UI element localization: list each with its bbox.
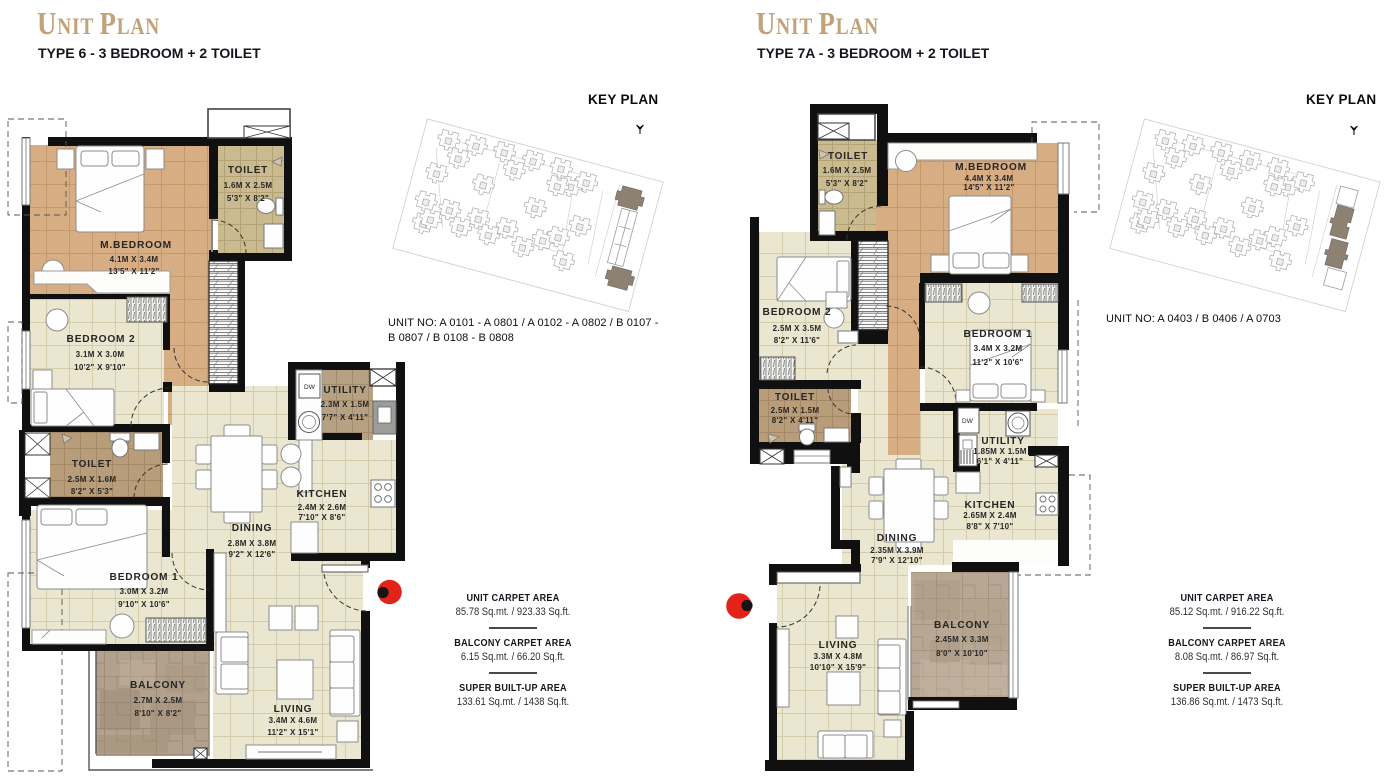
svg-text:7'7" X 4'11": 7'7" X 4'11": [322, 413, 369, 422]
svg-text:BEDROOM 1: BEDROOM 1: [110, 572, 179, 583]
svg-text:2.7M X 2.5M: 2.7M X 2.5M: [134, 696, 183, 705]
svg-text:2.45M X 3.3M: 2.45M X 3.3M: [935, 635, 988, 644]
svg-text:8'8" X 7'10": 8'8" X 7'10": [966, 522, 1013, 531]
svg-text:TOILET: TOILET: [828, 151, 868, 162]
svg-text:2.4M X 2.6M: 2.4M X 2.6M: [298, 503, 347, 512]
svg-text:13'5" X 11'2": 13'5" X 11'2": [108, 267, 159, 276]
svg-text:BALCONY: BALCONY: [130, 680, 186, 691]
svg-text:3.4M X 3.2M: 3.4M X 3.2M: [974, 344, 1023, 353]
svg-text:DINING: DINING: [232, 523, 272, 534]
svg-text:10'10" X 15'9": 10'10" X 15'9": [810, 663, 867, 672]
svg-text:11'2" X 15'1": 11'2" X 15'1": [267, 728, 318, 737]
svg-text:M.BEDROOM: M.BEDROOM: [100, 240, 172, 251]
svg-text:3.3M X 4.8M: 3.3M X 4.8M: [814, 652, 863, 661]
svg-text:3.4M X 4.6M: 3.4M X 4.6M: [269, 716, 318, 725]
svg-text:UTILITY: UTILITY: [323, 385, 366, 396]
svg-text:KITCHEN: KITCHEN: [297, 489, 348, 500]
svg-text:7'9" X 12'10": 7'9" X 12'10": [871, 556, 923, 565]
svg-text:10'2" X 9'10": 10'2" X 9'10": [74, 363, 126, 372]
svg-text:7'10" X 8'6": 7'10" X 8'6": [298, 513, 345, 522]
svg-text:DW: DW: [962, 418, 974, 425]
svg-text:2.65M X 2.4M: 2.65M X 2.4M: [963, 511, 1016, 520]
svg-text:DINING: DINING: [877, 533, 917, 544]
svg-text:3.0M X 3.2M: 3.0M X 3.2M: [120, 587, 169, 596]
svg-text:8'2" X 4'11": 8'2" X 4'11": [772, 416, 819, 425]
svg-text:8'0" X 10'10": 8'0" X 10'10": [936, 649, 988, 658]
svg-text:BEDROOM 1: BEDROOM 1: [964, 329, 1033, 340]
svg-text:5'3" X 8'2": 5'3" X 8'2": [227, 194, 269, 203]
svg-text:4.1M X 3.4M: 4.1M X 3.4M: [110, 255, 159, 264]
svg-text:2.5M X 3.5M: 2.5M X 3.5M: [773, 324, 822, 333]
svg-text:1.6M X 2.5M: 1.6M X 2.5M: [823, 166, 872, 175]
svg-text:TOILET: TOILET: [228, 165, 268, 176]
svg-text:1.85M X 1.5M: 1.85M X 1.5M: [973, 447, 1026, 456]
svg-text:BALCONY: BALCONY: [934, 620, 990, 631]
svg-text:2.5M X 1.6M: 2.5M X 1.6M: [68, 475, 117, 484]
svg-text:8'10" X 8'2": 8'10" X 8'2": [134, 709, 181, 718]
svg-text:2.3M X 1.5M: 2.3M X 1.5M: [321, 400, 370, 409]
svg-text:LIVING: LIVING: [274, 704, 313, 715]
svg-text:9'2" X 12'6": 9'2" X 12'6": [228, 550, 275, 559]
svg-text:11'2" X 10'6": 11'2" X 10'6": [972, 358, 1023, 367]
svg-text:LIVING: LIVING: [819, 640, 858, 651]
svg-text:BEDROOM 2: BEDROOM 2: [763, 307, 832, 318]
svg-text:UTILITY: UTILITY: [981, 436, 1024, 447]
svg-text:9'10" X 10'6": 9'10" X 10'6": [118, 600, 170, 609]
svg-text:8'2" X 5'3": 8'2" X 5'3": [71, 487, 113, 496]
svg-text:KITCHEN: KITCHEN: [965, 500, 1016, 511]
svg-text:TOILET: TOILET: [775, 392, 815, 403]
svg-text:8'2" X 11'6": 8'2" X 11'6": [774, 336, 821, 345]
svg-text:BEDROOM 2: BEDROOM 2: [67, 334, 136, 345]
svg-text:DW: DW: [304, 384, 316, 391]
svg-text:14'5" X 11'2": 14'5" X 11'2": [963, 183, 1014, 192]
svg-text:TOILET: TOILET: [72, 459, 112, 470]
svg-text:M.BEDROOM: M.BEDROOM: [955, 162, 1027, 173]
svg-text:2.8M X 3.8M: 2.8M X 3.8M: [228, 539, 277, 548]
svg-text:4.4M X 3.4M: 4.4M X 3.4M: [965, 174, 1014, 183]
svg-text:6'1" X 4'11": 6'1" X 4'11": [977, 457, 1024, 466]
svg-text:5'3" X 8'2": 5'3" X 8'2": [826, 179, 868, 188]
svg-text:1.6M X 2.5M: 1.6M X 2.5M: [224, 181, 273, 190]
svg-text:3.1M X 3.0M: 3.1M X 3.0M: [76, 350, 125, 359]
svg-text:2.35M X 3.9M: 2.35M X 3.9M: [870, 546, 923, 555]
svg-text:2.5M X 1.5M: 2.5M X 1.5M: [771, 406, 820, 415]
